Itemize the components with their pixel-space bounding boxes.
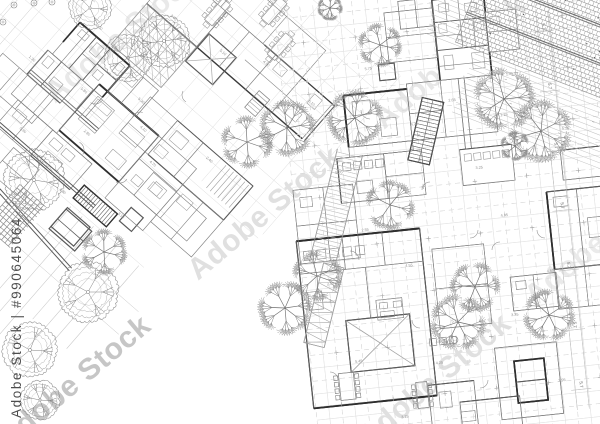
svg-text:2.65: 2.65 — [448, 98, 456, 103]
svg-text:4.65: 4.65 — [547, 269, 555, 274]
svg-text:1.15: 1.15 — [500, 113, 508, 118]
svg-text:5.7: 5.7 — [560, 202, 566, 209]
svg-text:4.25: 4.25 — [436, 361, 444, 366]
svg-text:2.55: 2.55 — [327, 282, 335, 287]
svg-text:3.95: 3.95 — [558, 378, 566, 383]
svg-text:3.15: 3.15 — [401, 415, 409, 420]
svg-text:5.7: 5.7 — [566, 262, 572, 269]
svg-text:1.85: 1.85 — [506, 72, 514, 77]
svg-text:3.35: 3.35 — [511, 313, 519, 318]
svg-text:5.7: 5.7 — [578, 381, 584, 388]
svg-text:Adobe Stock | #990645064: Adobe Stock | #990645064 — [9, 217, 24, 418]
svg-text:4.55: 4.55 — [405, 263, 413, 268]
svg-text:4.75: 4.75 — [410, 122, 418, 127]
svg-text:3.25: 3.25 — [475, 165, 483, 170]
svg-text:5.45: 5.45 — [355, 359, 363, 364]
svg-text:5.75: 5.75 — [451, 319, 459, 324]
svg-text:4.95: 4.95 — [500, 213, 508, 218]
svg-text:5.85: 5.85 — [335, 170, 343, 175]
svg-text:5.25: 5.25 — [562, 126, 570, 131]
svg-text:2.85: 2.85 — [535, 159, 543, 164]
svg-text:2.55: 2.55 — [361, 228, 369, 233]
svg-text:5.75: 5.75 — [364, 66, 372, 71]
